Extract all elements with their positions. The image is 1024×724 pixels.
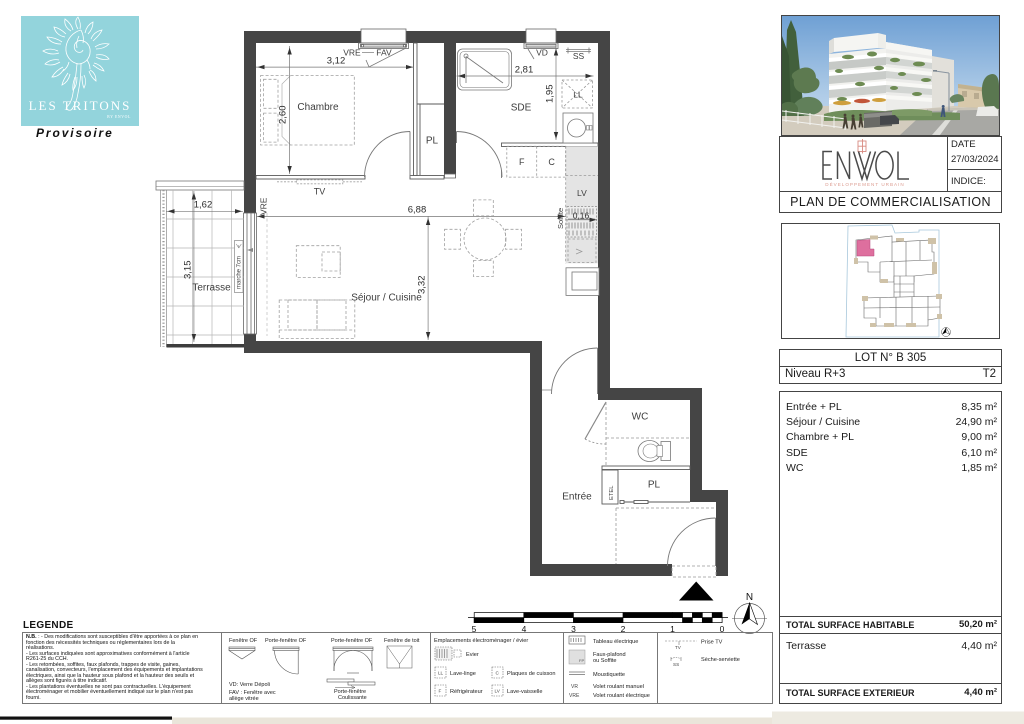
svg-text:F: F	[439, 689, 442, 694]
svg-text:TV: TV	[675, 645, 682, 650]
svg-text:VRE: VRE	[259, 197, 269, 215]
svg-text:Evier: Evier	[466, 652, 479, 658]
svg-text:C: C	[548, 157, 555, 167]
svg-text:Tableau électrique: Tableau électrique	[593, 639, 638, 645]
svg-text:N: N	[746, 592, 753, 603]
svg-text:SS: SS	[573, 51, 585, 61]
svg-text:LV: LV	[495, 689, 501, 694]
svg-text:Prise TV: Prise TV	[701, 640, 723, 646]
svg-text:LL: LL	[438, 671, 444, 676]
svg-text:3,32: 3,32	[417, 276, 428, 295]
svg-text:VR: VR	[571, 684, 578, 690]
svg-text:marche 7cm: marche 7cm	[237, 256, 243, 289]
svg-text:3,15: 3,15	[183, 261, 194, 280]
svg-text:Moustiquette: Moustiquette	[593, 672, 625, 678]
svg-text:C: C	[496, 671, 500, 676]
svg-text:Sèche-serviette: Sèche-serviette	[701, 657, 740, 663]
svg-text:VRE: VRE	[343, 48, 361, 58]
svg-text:1,95: 1,95	[545, 85, 556, 104]
svg-text:ou Soffite: ou Soffite	[593, 658, 617, 664]
svg-text:2,60: 2,60	[278, 106, 289, 125]
svg-text:6,88: 6,88	[408, 205, 427, 216]
svg-text:TV: TV	[314, 187, 326, 197]
svg-text:LES TRITONS: LES TRITONS	[29, 98, 132, 113]
svg-text:Volet roulant manuel: Volet roulant manuel	[593, 684, 644, 690]
svg-text:Fenêtre OF: Fenêtre OF	[229, 638, 258, 644]
svg-text:VD: Verre Dépoli: VD: Verre Dépoli	[229, 682, 270, 688]
svg-text:LV: LV	[577, 188, 587, 198]
svg-text:Volet roulant électrique: Volet roulant électrique	[593, 693, 650, 699]
svg-text:FAV: FAV	[376, 48, 392, 58]
svg-text:VD: VD	[536, 48, 548, 58]
svg-text:Emplacements électroménager /: Emplacements électroménager / évier	[434, 638, 528, 644]
svg-text:Plaques de cuisson: Plaques de cuisson	[507, 671, 556, 677]
svg-text:Lave-linge: Lave-linge	[450, 671, 476, 677]
svg-text:Fenêtre de toit: Fenêtre de toit	[384, 638, 420, 644]
svg-text:Porte-fenêtre OF: Porte-fenêtre OF	[265, 638, 307, 644]
svg-text:FP: FP	[579, 658, 584, 663]
svg-text:Séjour / Cuisine: Séjour / Cuisine	[351, 293, 422, 304]
svg-text:Coulissante: Coulissante	[338, 695, 367, 701]
svg-text:WC: WC	[632, 412, 649, 423]
svg-text:Lave-vaisselle: Lave-vaisselle	[507, 689, 542, 695]
svg-text:LL: LL	[573, 90, 583, 100]
svg-text:allège vitrée: allège vitrée	[229, 696, 259, 702]
svg-text:1,62: 1,62	[194, 200, 213, 211]
svg-text:Porte-fenêtre OF: Porte-fenêtre OF	[331, 638, 373, 644]
svg-text:2,81: 2,81	[515, 64, 534, 75]
svg-text:DÉVELOPPEMENT URBAIN: DÉVELOPPEMENT URBAIN	[825, 181, 904, 187]
svg-text:Chambre: Chambre	[297, 102, 339, 113]
svg-text:SS: SS	[673, 662, 679, 667]
svg-text:F: F	[519, 157, 525, 167]
svg-text:Terrasse: Terrasse	[192, 283, 231, 294]
svg-text:VRE: VRE	[569, 693, 580, 699]
svg-text:ETEL: ETEL	[609, 485, 615, 500]
svg-text:PL: PL	[426, 136, 439, 147]
svg-text:Soffite: Soffite	[556, 208, 565, 229]
svg-text:BY ENVOL: BY ENVOL	[107, 115, 131, 119]
svg-text:Entrée: Entrée	[562, 492, 592, 503]
svg-text:0,16: 0,16	[573, 211, 590, 221]
svg-text:PL: PL	[648, 480, 661, 491]
svg-text:Réfrigérateur: Réfrigérateur	[450, 689, 483, 695]
svg-text:SDE: SDE	[511, 103, 532, 114]
